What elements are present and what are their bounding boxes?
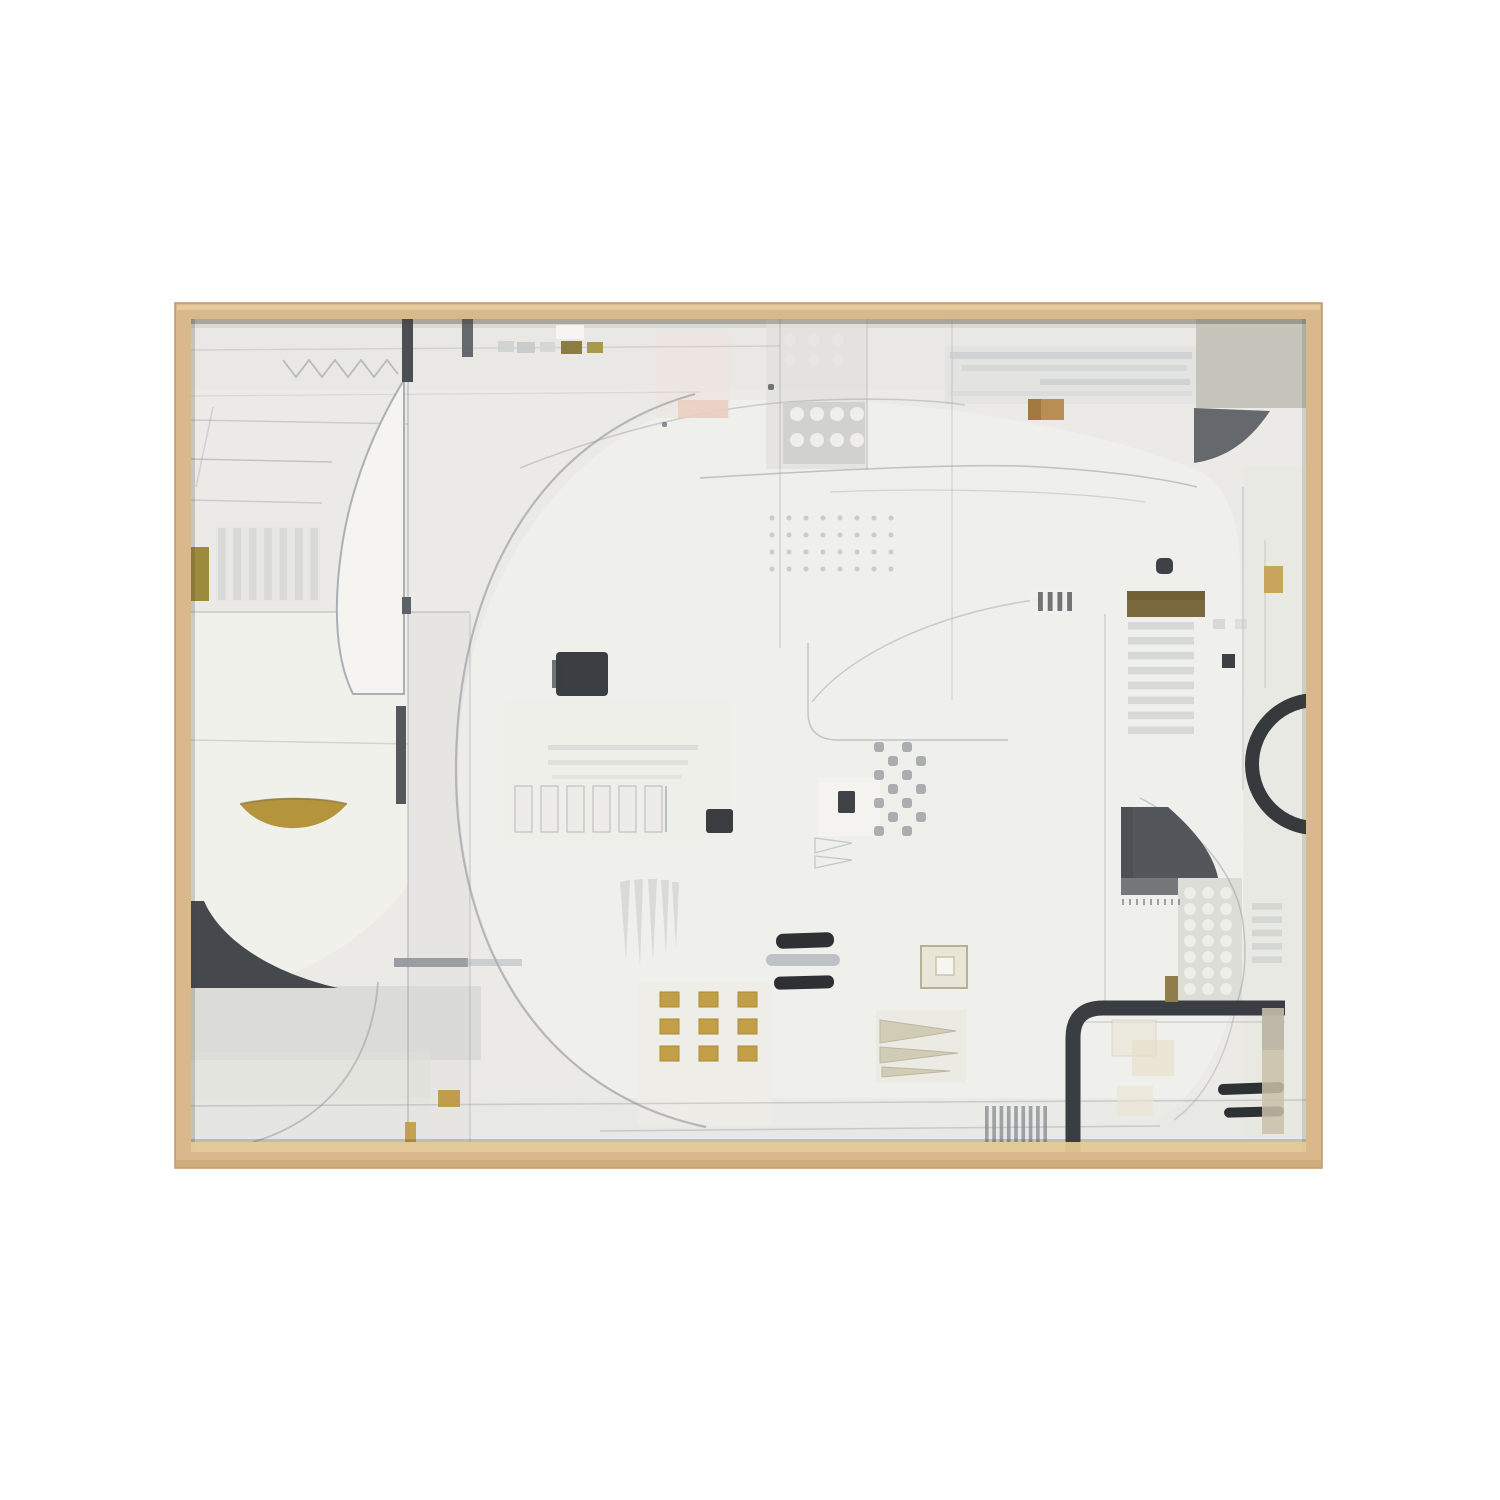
gold-chip-bottom xyxy=(438,1090,460,1107)
gold-square-right-edge xyxy=(1264,566,1283,593)
top-right-gray-square xyxy=(1196,319,1306,408)
dark-dot xyxy=(1156,558,1173,574)
white-chip xyxy=(556,325,584,339)
gray-streak xyxy=(950,352,1192,359)
olive-chip xyxy=(561,341,582,354)
beige-square xyxy=(1117,1086,1153,1116)
smudge-bar-fade xyxy=(466,959,522,966)
streak-above-keys xyxy=(552,775,682,779)
inner-sill-wood xyxy=(191,1142,1306,1152)
dark-seam-segment xyxy=(402,597,411,614)
gray-bar xyxy=(766,954,840,966)
dark-speck xyxy=(662,422,667,427)
smudge-bar xyxy=(394,958,468,967)
tan-strip-top-shade xyxy=(1262,1008,1284,1050)
gray-streak xyxy=(1040,379,1190,385)
faint-square xyxy=(1235,619,1247,629)
dark-seam-segment xyxy=(396,706,406,804)
dark-speck xyxy=(768,384,774,390)
black-bar xyxy=(776,932,834,949)
small-dark-square xyxy=(1222,654,1235,668)
artwork-svg xyxy=(0,0,1500,1500)
gray-chip xyxy=(517,342,535,353)
gray-streak xyxy=(962,365,1187,371)
gold-squares-grid xyxy=(660,992,757,1061)
blush-chip xyxy=(678,400,728,418)
inner-sill-line xyxy=(191,1139,1306,1142)
framed-abstract-painting xyxy=(0,0,1500,1500)
small-black-square xyxy=(838,791,855,813)
hatch-block xyxy=(985,1106,1047,1142)
black-square xyxy=(706,809,733,833)
wash-bottom-left xyxy=(191,986,481,1060)
olive-bar-shade xyxy=(1127,591,1205,600)
gray-streak xyxy=(950,391,1192,396)
faint-square xyxy=(1213,619,1225,629)
beige-square xyxy=(1132,1040,1174,1076)
dark-top-bar xyxy=(402,319,413,382)
square-in-square-inner xyxy=(936,957,954,975)
dark-triangle-band xyxy=(1121,878,1178,895)
dark-top-bar xyxy=(462,319,473,357)
black-bar xyxy=(774,975,834,990)
frame-bottom-shade xyxy=(175,1160,1322,1168)
gray-chip xyxy=(540,342,555,352)
black-blob-square xyxy=(556,652,608,696)
dark-triangle-shade xyxy=(1121,807,1133,878)
gray-chip xyxy=(498,341,514,352)
inner-shadow-left xyxy=(191,319,195,1152)
black-blob-ragged-edge xyxy=(552,660,562,688)
frame-top-highlight xyxy=(177,305,1320,310)
olive-chip xyxy=(587,342,603,353)
tan-chip-dark-edge xyxy=(1028,399,1041,420)
inner-shadow-right xyxy=(1302,319,1306,1152)
inner-shadow-top xyxy=(191,319,1306,324)
dotted-patch-right-dots xyxy=(1184,887,1232,995)
olive-chip-small xyxy=(1165,976,1178,1002)
streak-above-keys xyxy=(548,745,698,750)
streak-above-keys xyxy=(548,760,688,765)
